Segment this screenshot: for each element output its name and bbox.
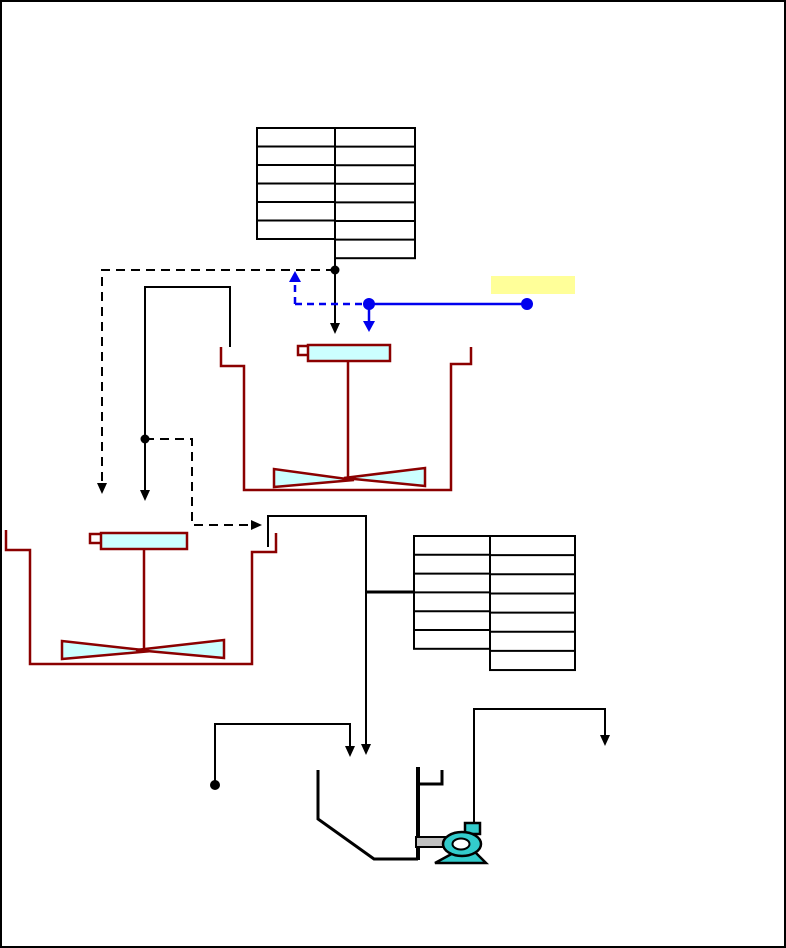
diagram-page xyxy=(0,0,786,948)
process-flow-diagram xyxy=(2,2,786,948)
impeller-blade-right xyxy=(136,640,224,658)
data-table xyxy=(414,536,575,670)
arrowhead-down-icon xyxy=(140,490,150,501)
sample-line-path xyxy=(215,724,350,785)
transfer-pipe-2 xyxy=(268,516,420,755)
arrowhead-down-icon xyxy=(330,323,340,334)
sample-line xyxy=(210,724,355,790)
transfer-pipe-1 xyxy=(140,287,230,501)
arrowhead-down-icon xyxy=(600,735,610,746)
highlight-box xyxy=(491,276,575,294)
tank-outline xyxy=(221,347,471,490)
mixing-tank-2 xyxy=(6,530,276,664)
arrowhead-right-icon xyxy=(251,520,262,530)
blue-arrowhead-down-icon xyxy=(363,321,375,332)
arrowhead-down-icon xyxy=(97,483,107,494)
impeller-blade-right xyxy=(344,468,425,486)
pump-discharge-line xyxy=(474,709,610,823)
mixing-tank-1 xyxy=(221,345,471,490)
hopper-overflow-weir xyxy=(418,770,442,784)
hopper-wall-left xyxy=(318,770,418,859)
arrowhead-down-icon xyxy=(345,746,355,757)
agitator-motor xyxy=(101,533,187,549)
transfer-pipe-1-path xyxy=(145,287,230,491)
pump-discharge-path xyxy=(474,709,605,823)
centrifugal-pump xyxy=(435,823,486,863)
end-dot xyxy=(210,780,220,790)
transfer-pipe-2-path xyxy=(268,516,366,746)
blue-node-dot xyxy=(521,298,533,310)
arrowhead-down-icon xyxy=(361,744,371,755)
feed-table xyxy=(257,128,415,258)
impeller-blade-left xyxy=(274,469,354,487)
agitator-motor xyxy=(308,345,390,361)
recycle-dashed-path xyxy=(102,270,335,483)
pump-eye xyxy=(453,839,470,850)
control-dashed-path xyxy=(145,439,251,525)
blue-arrowhead-up-icon xyxy=(289,271,301,282)
